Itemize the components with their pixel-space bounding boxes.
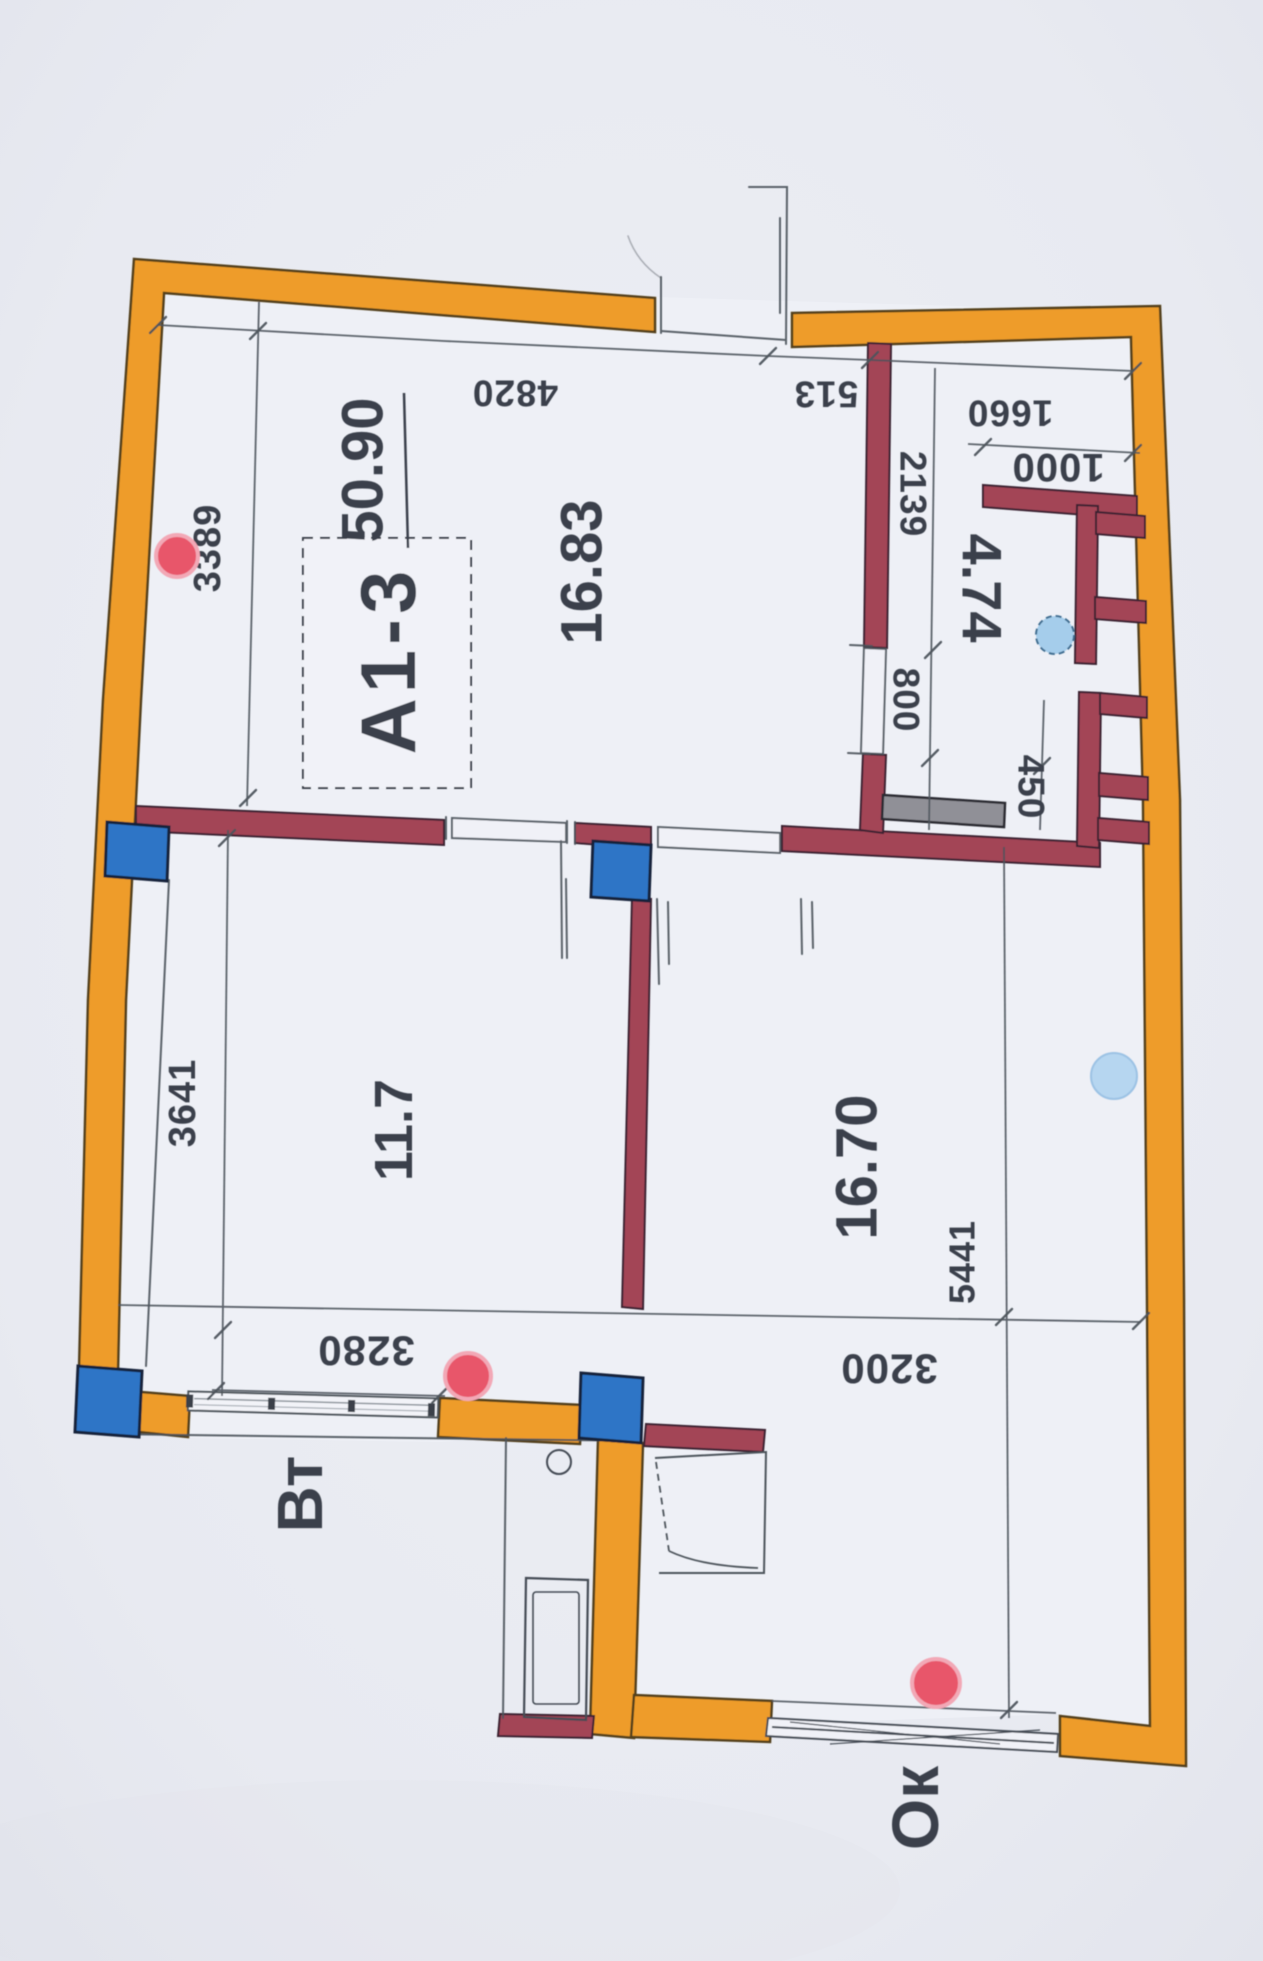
svg-text:800: 800 [886, 668, 927, 733]
svg-text:3641: 3641 [162, 1059, 204, 1148]
svg-text:11.7: 11.7 [364, 1079, 424, 1181]
svg-text:513: 513 [794, 374, 859, 415]
svg-text:3280: 3280 [317, 1328, 414, 1375]
svg-text:16.70: 16.70 [825, 1094, 890, 1239]
svg-text:16.83: 16.83 [550, 499, 615, 644]
svg-text:3200: 3200 [840, 1346, 937, 1393]
svg-text:1000: 1000 [1012, 445, 1105, 489]
svg-text:4.74: 4.74 [951, 534, 1014, 643]
svg-text:4820: 4820 [472, 373, 558, 414]
svg-text:450: 450 [1011, 755, 1052, 820]
svg-text:Ок: Ок [878, 1765, 952, 1850]
svg-text:Вт: Вт [264, 1456, 336, 1533]
svg-text:2139: 2139 [893, 451, 934, 537]
svg-text:A1-3: A1-3 [344, 565, 432, 754]
svg-text:1660: 1660 [967, 393, 1053, 434]
svg-text:50.90: 50.90 [331, 397, 396, 542]
svg-text:5441: 5441 [942, 1220, 983, 1304]
